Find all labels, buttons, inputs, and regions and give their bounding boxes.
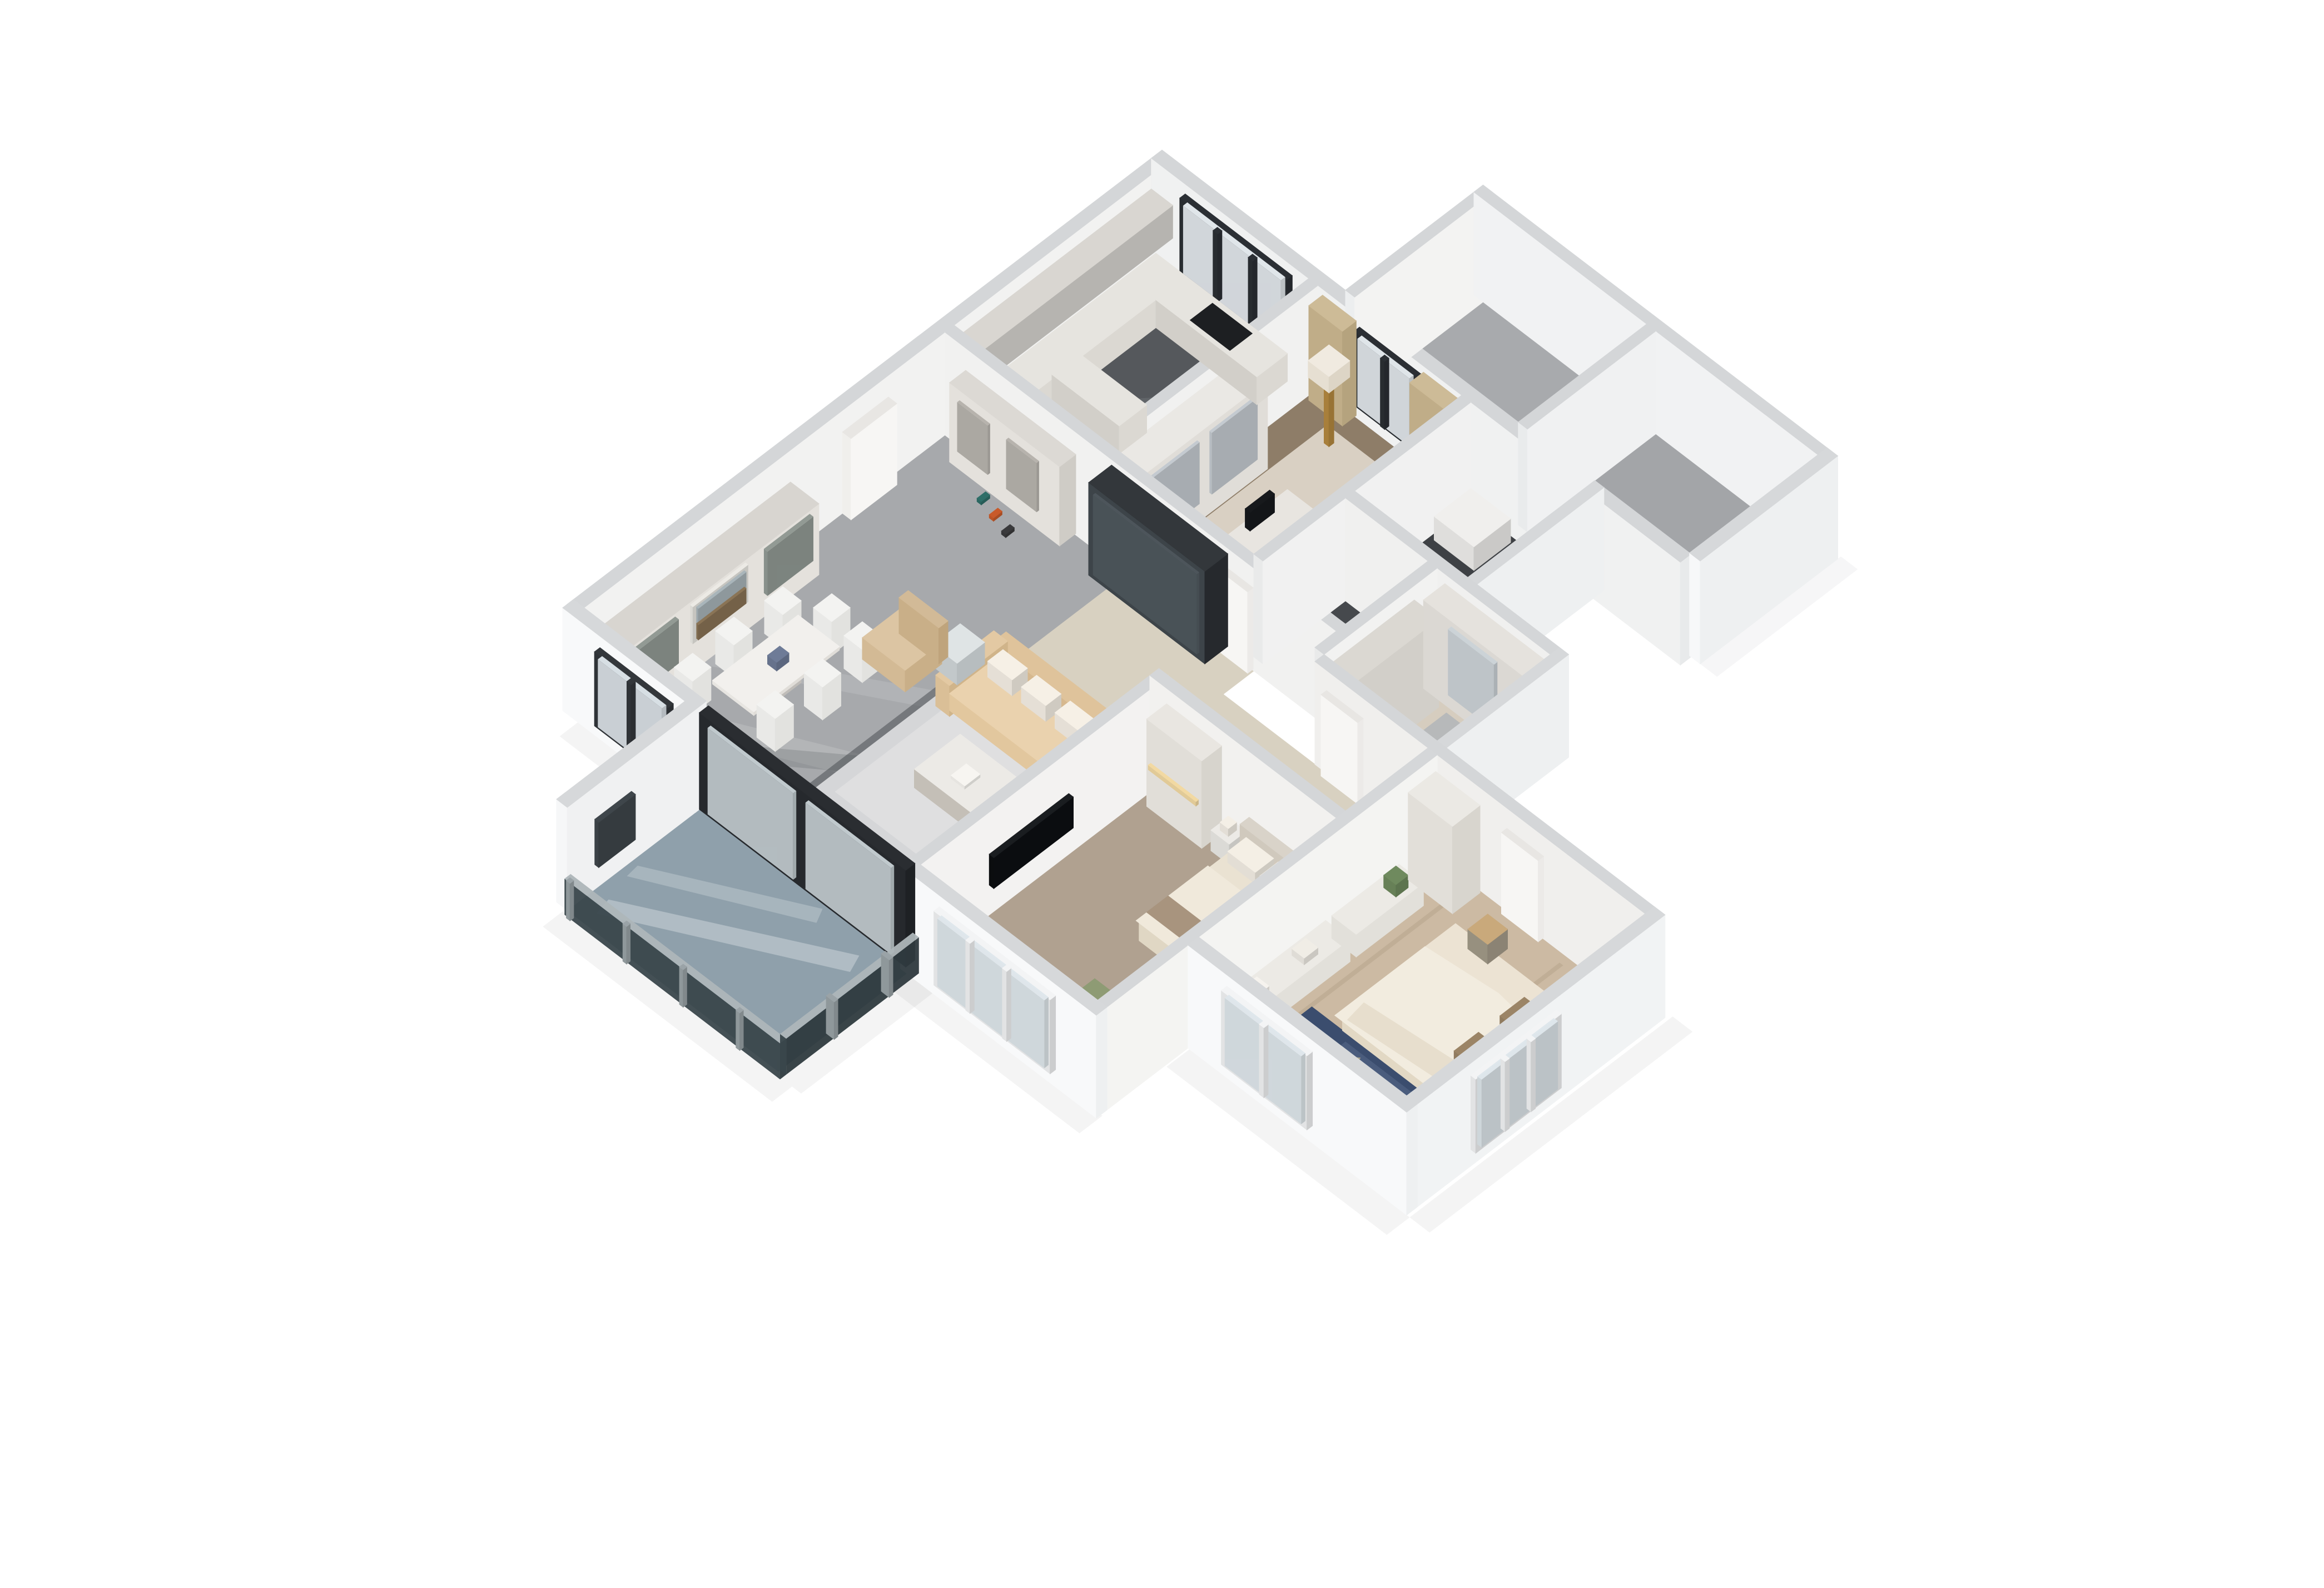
- kitchen-window-mullion-1: [1213, 227, 1222, 302]
- page-background: [0, 0, 2324, 1588]
- kitchen-window-mullion-2: [1248, 254, 1257, 329]
- railing-post-4: [736, 1008, 743, 1050]
- railing-post-3: [679, 964, 687, 1007]
- bedroom2-south-window-mullion-1: [1501, 1055, 1509, 1132]
- bedroom1-window-mullion-2: [1002, 965, 1011, 1042]
- study-window-mullion: [1381, 355, 1389, 429]
- railing-post-5: [826, 993, 838, 1039]
- bedroom1-window-mullion-1: [966, 937, 974, 1014]
- railing-post-2: [623, 921, 630, 964]
- bedroom2-south-window-mullion-2: [1527, 1035, 1535, 1112]
- bedroom2-west-window-mullion: [1259, 1021, 1268, 1098]
- floorplan-3d-render: [0, 0, 2324, 1588]
- railing-post-6: [881, 951, 893, 998]
- railing-post-1: [567, 878, 574, 921]
